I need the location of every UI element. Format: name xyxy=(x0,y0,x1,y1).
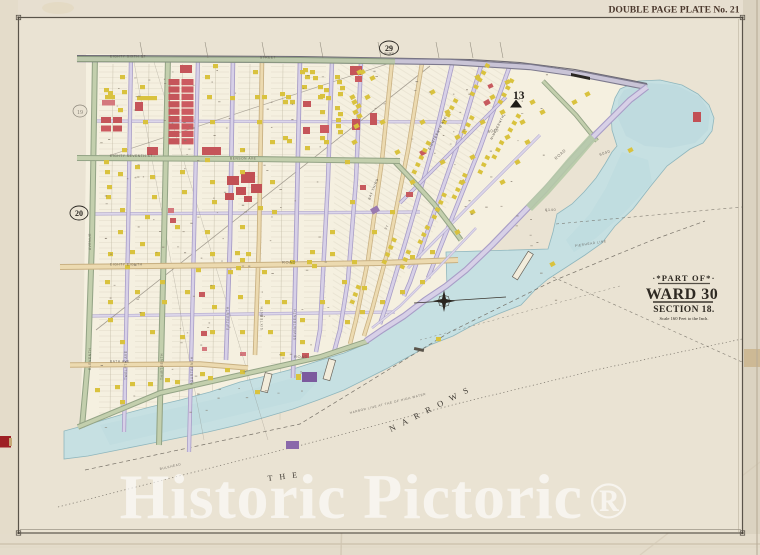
svg-text:ROAD: ROAD xyxy=(282,260,296,265)
svg-text:AVENUE: AVENUE xyxy=(88,233,92,250)
svg-text:SECTION 18.: SECTION 18. xyxy=(653,305,714,315)
svg-text:13: 13 xyxy=(513,90,525,102)
svg-text:FOURTEENTH: FOURTEENTH xyxy=(190,356,194,385)
svg-text:BATH AVE: BATH AVE xyxy=(110,360,130,364)
svg-text:SECTION: SECTION xyxy=(384,52,394,55)
svg-text:6140: 6140 xyxy=(545,207,556,212)
svg-text:THIRTEENTH: THIRTEENTH xyxy=(160,353,164,380)
svg-text:·*PART OF*·: ·*PART OF*· xyxy=(652,273,715,283)
svg-text:DOUBLE PAGE PLATE No. 21: DOUBLE PAGE PLATE No. 21 xyxy=(608,5,739,16)
svg-text:FIFTEENTH: FIFTEENTH xyxy=(226,306,230,330)
svg-text:STREET: STREET xyxy=(260,56,276,60)
svg-text:SEVENTEENTH: SEVENTEENTH xyxy=(293,309,297,340)
svg-text:ELEVENTH: ELEVENTH xyxy=(88,348,92,370)
svg-text:Scale 160 Feet to the Inch.: Scale 160 Feet to the Inch. xyxy=(660,316,709,321)
svg-text:19: 19 xyxy=(77,110,83,116)
svg-text:Historic Pictoric®: Historic Pictoric® xyxy=(120,461,629,532)
svg-text:EIGHTY SIXTH ST: EIGHTY SIXTH ST xyxy=(110,55,146,59)
svg-text:SIXTEENTH: SIXTEENTH xyxy=(260,306,264,330)
svg-text:20: 20 xyxy=(75,209,83,218)
svg-text:EIGHTY EIGHTH: EIGHTY EIGHTH xyxy=(110,263,143,267)
svg-text:EIGHTY SEVENTH ST: EIGHTY SEVENTH ST xyxy=(110,154,153,158)
svg-text:WARD 30: WARD 30 xyxy=(646,286,718,303)
svg-text:ROAD: ROAD xyxy=(294,354,308,359)
svg-text:TWELFTH AVE: TWELFTH AVE xyxy=(124,350,128,380)
svg-text:BENSON AVE: BENSON AVE xyxy=(230,157,256,161)
